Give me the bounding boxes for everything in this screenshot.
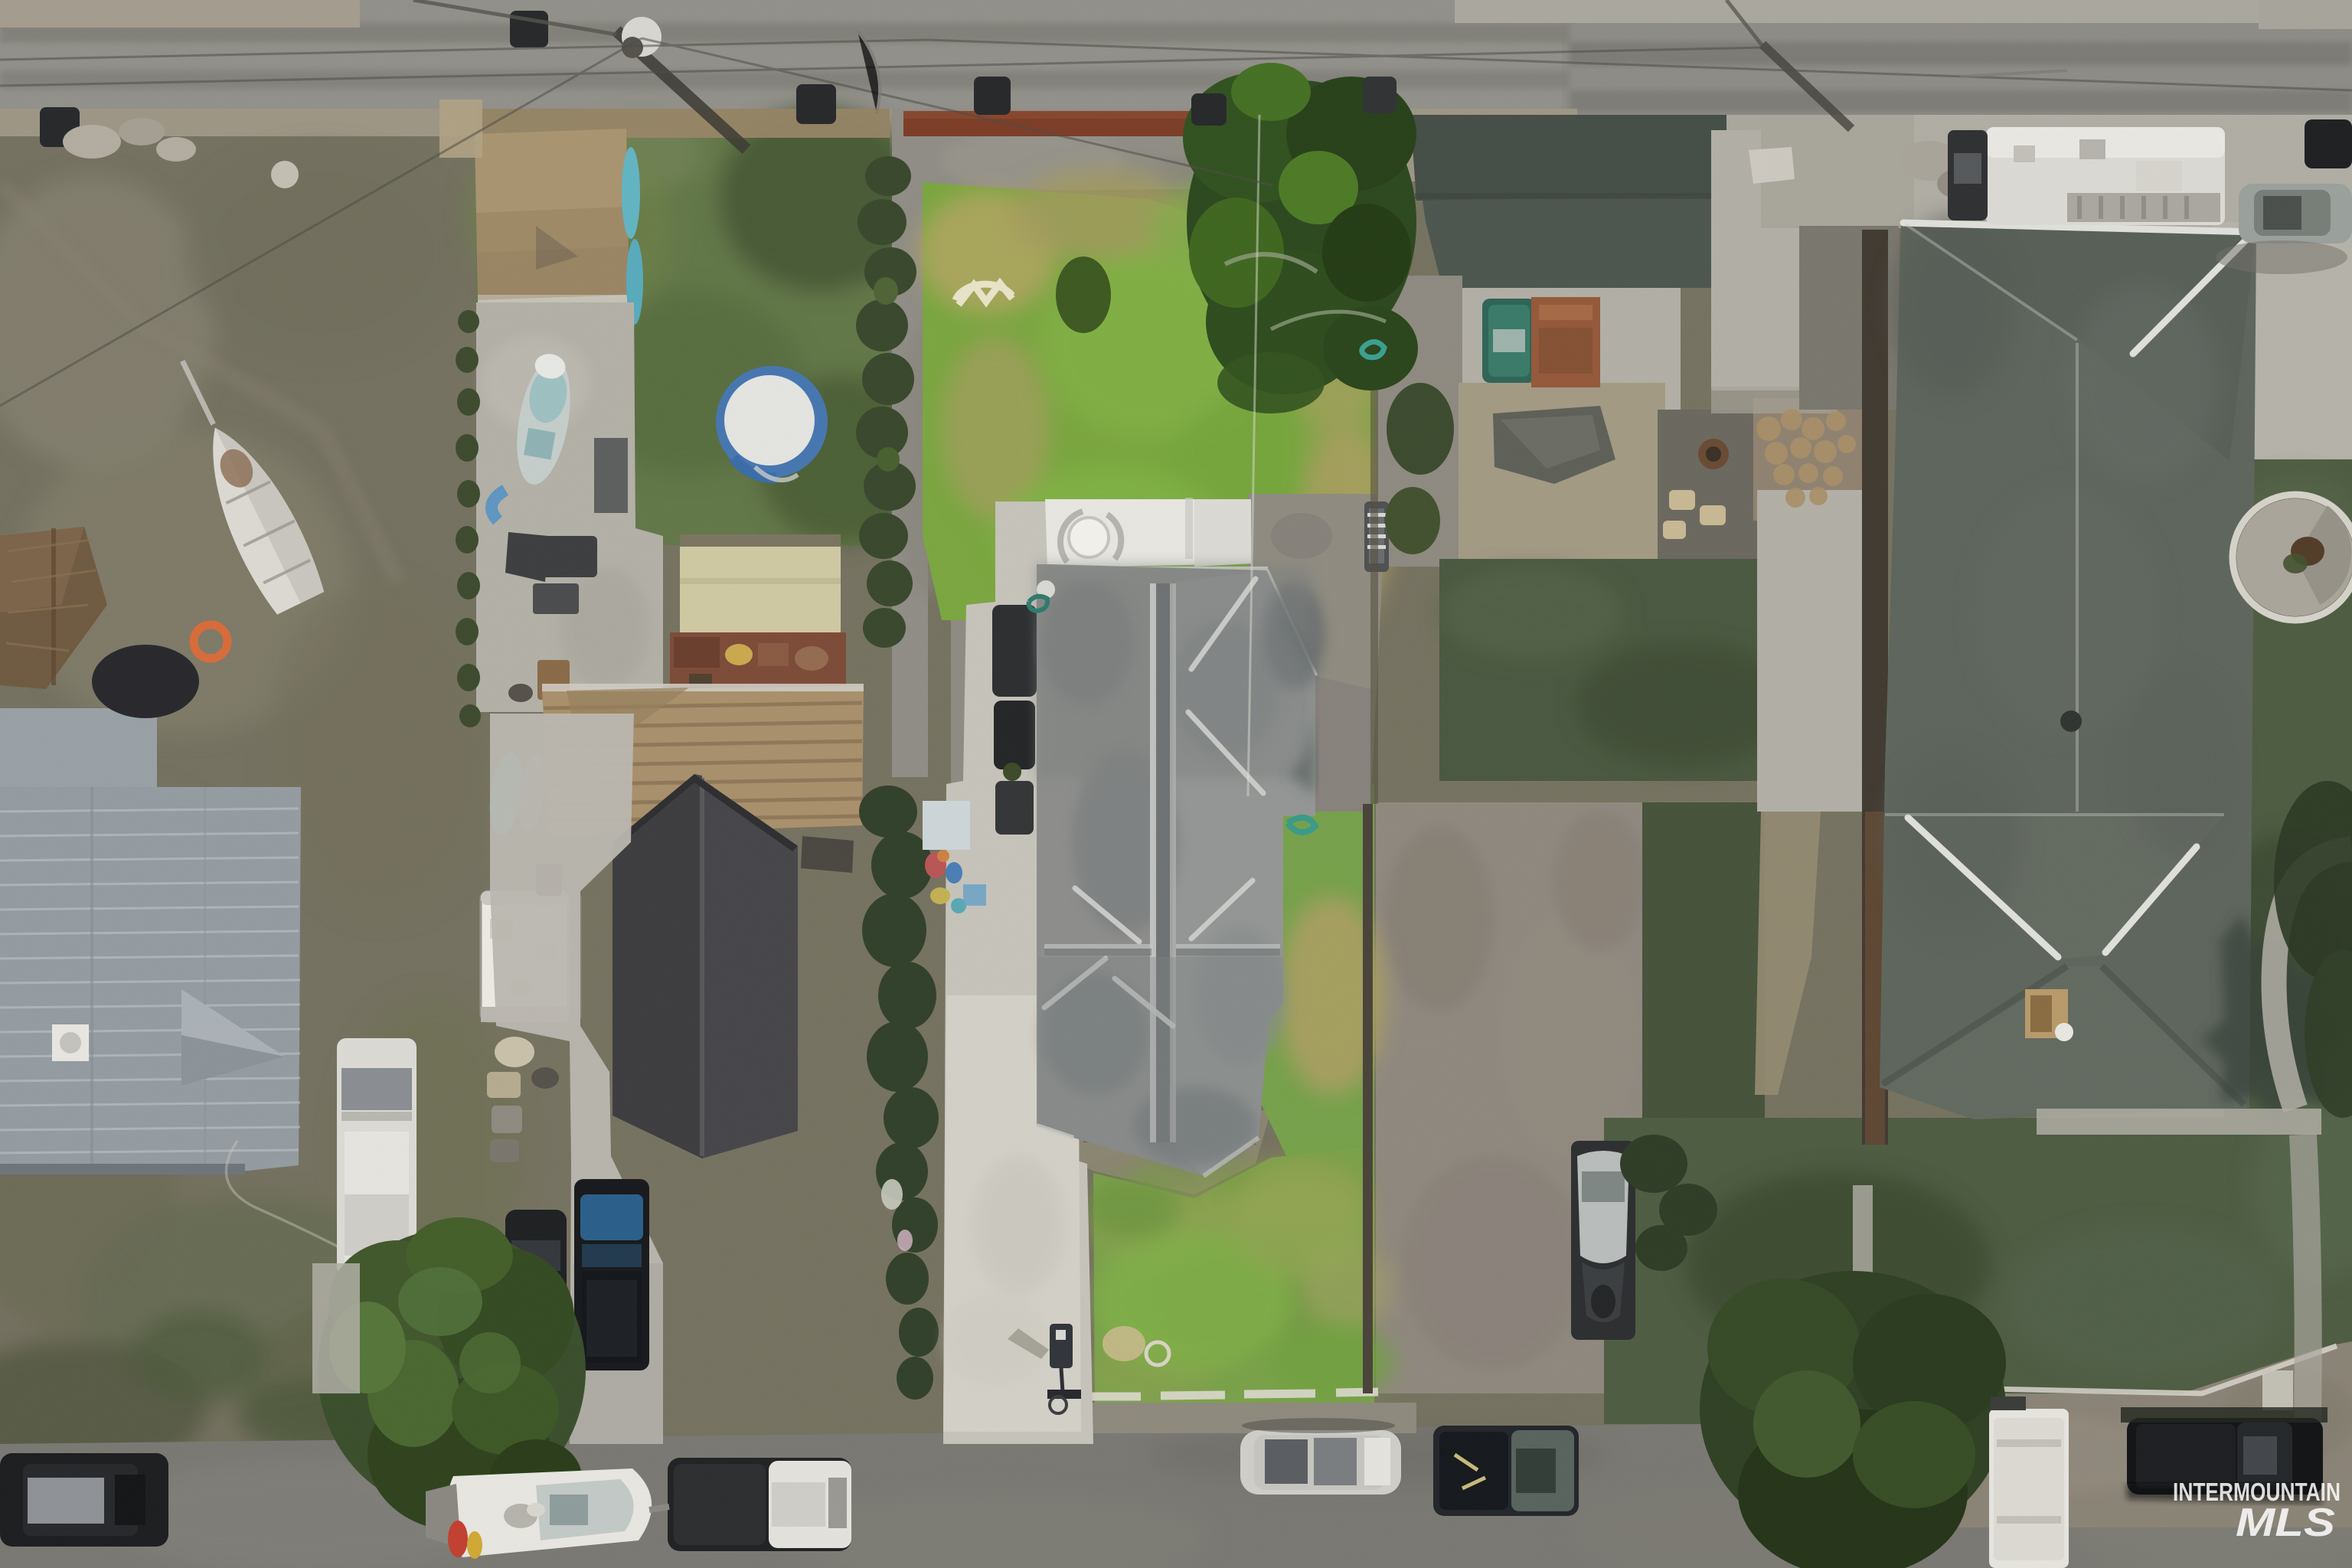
svg-text:MLS: MLS — [2236, 1501, 2335, 1545]
